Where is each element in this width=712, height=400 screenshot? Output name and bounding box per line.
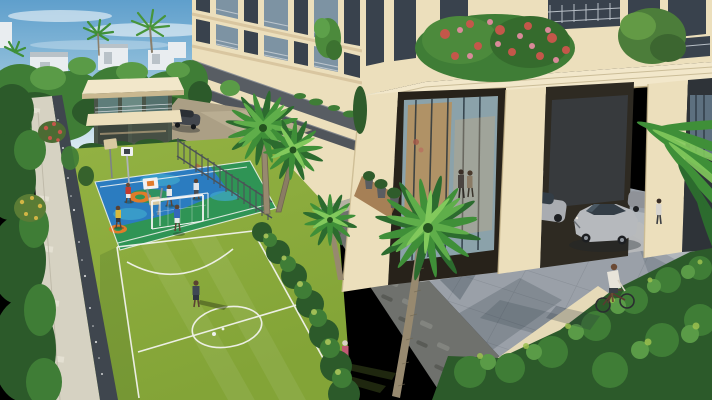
flowering-bush [415,14,575,82]
cornice-tree [618,8,686,64]
soccer-ball [212,332,216,336]
junction-shrub [353,86,367,134]
yellow-flower-shrub [14,194,46,222]
rendered-scene [0,0,712,400]
red-flower-shrub [38,121,66,143]
